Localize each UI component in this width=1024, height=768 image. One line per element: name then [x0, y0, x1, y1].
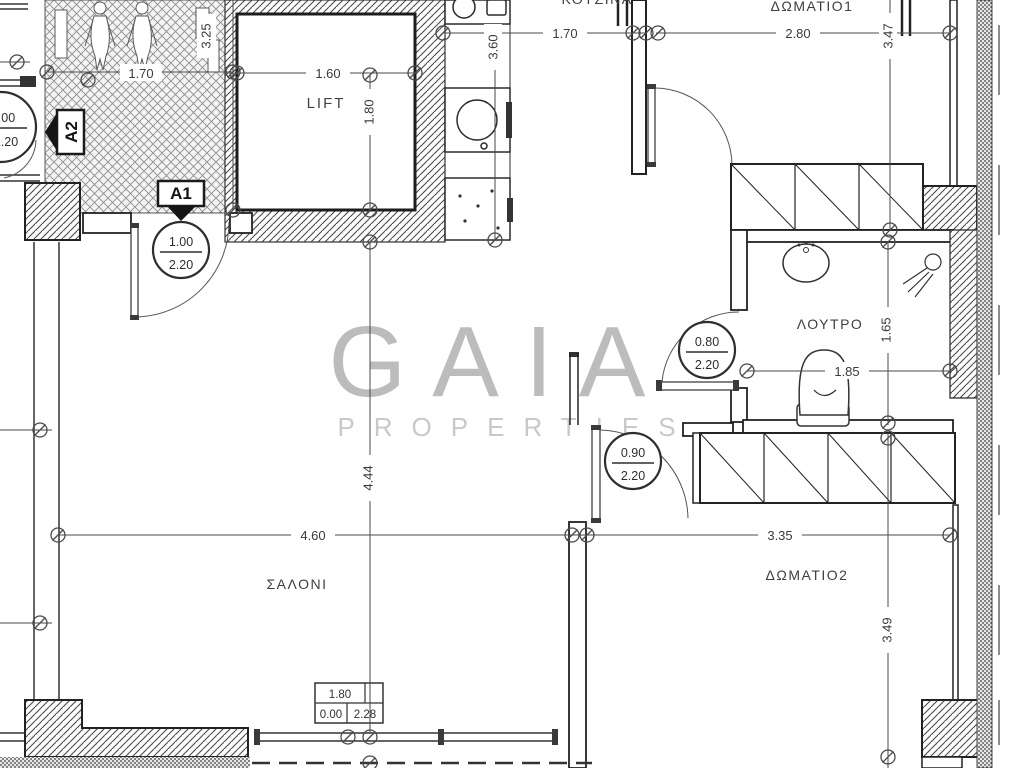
lift-cabin — [237, 14, 415, 210]
door-leaf — [131, 225, 138, 317]
dim-hall-width: 1.70 — [128, 66, 153, 81]
floor-plan-page: GAIA PROPERTIES LIFT — [0, 0, 1024, 768]
lift: LIFT — [225, 0, 445, 242]
floor-plan: GAIA PROPERTIES LIFT — [0, 0, 1024, 768]
door-height: 2.20 — [0, 135, 18, 149]
dim-bedroom1-depth: 3.47 — [881, 23, 896, 48]
dim-lift-width: 1.60 — [315, 66, 340, 81]
door-height: 2.20 — [695, 358, 719, 372]
marker-a1-label: A1 — [170, 184, 192, 203]
dim-lift-depth: 1.80 — [362, 99, 377, 124]
exterior-band-bottom — [0, 757, 250, 768]
door-leaf — [660, 382, 734, 390]
dim-kitchen-depth: 3.60 — [486, 34, 501, 59]
knob-icon — [481, 143, 487, 149]
worktop — [445, 178, 510, 240]
wall-block — [20, 76, 36, 87]
column — [25, 183, 80, 240]
door-jamb — [83, 213, 131, 233]
door-height: 2.20 — [169, 258, 193, 272]
sink-drainer-icon — [487, 0, 506, 15]
watermark: GAIA PROPERTIES — [329, 306, 695, 442]
column — [922, 700, 978, 757]
bedroom2-label: ΔΩΜΑΤΙΟ2 — [766, 567, 849, 583]
door-width: 1.00 — [0, 111, 15, 125]
dim-living-width: 4.60 — [300, 528, 325, 543]
bathroom-label: ΛΟΥΤΡΟ — [797, 316, 864, 332]
wardrobe-bedroom2 — [693, 433, 955, 503]
watermark-name: GAIA — [329, 306, 672, 418]
window-sill: 0.00 — [320, 709, 342, 721]
door-jamb — [230, 213, 252, 233]
door-label-entrance: 1.00 2.20 — [153, 222, 209, 278]
wardrobe-bedroom1 — [731, 164, 923, 230]
bedroom1-right-wall — [950, 0, 957, 186]
bathroom-outer-wall — [950, 230, 977, 398]
living-label: ΣΑΛΟΝΙ — [267, 576, 328, 592]
window-width: 1.80 — [329, 689, 351, 701]
basin-icon — [783, 244, 829, 282]
exterior-wall-band — [977, 0, 992, 768]
dim-hall-depth: 3.25 — [199, 23, 214, 48]
dim-kitchen-width: 1.70 — [552, 26, 577, 41]
door-label-bedroom2: 0.90 2.20 — [605, 433, 661, 489]
dim-bedroom1-width: 2.80 — [785, 26, 810, 41]
door-label-bathroom: 0.80 2.20 — [679, 322, 735, 378]
window-lintel: 2.28 — [354, 709, 376, 721]
lift-label: LIFT — [307, 95, 346, 112]
dim-bedroom2-width: 3.35 — [767, 528, 792, 543]
toilet-bowl-icon — [799, 350, 849, 415]
door-leaf — [648, 86, 655, 166]
bedroom1-label: ΔΩΜΑΤΙΟ1 — [771, 0, 854, 14]
dim-bedroom2-depth: 3.49 — [880, 617, 895, 642]
dim-bathroom-depth: 1.65 — [879, 317, 894, 342]
hob-icon — [457, 100, 497, 140]
kitchen-label: ΚΟΥΖΙΝΑ — [561, 0, 632, 7]
window-table: 1.80 0.00 2.28 — [315, 683, 383, 723]
door-height: 2.20 — [621, 469, 645, 483]
dim-bathroom-width: 1.85 — [834, 364, 859, 379]
marker-a2-label: A2 — [62, 121, 81, 143]
door-width: 0.90 — [621, 446, 645, 460]
sink-bowl-icon — [453, 0, 475, 18]
dim-living-depth: 4.44 — [361, 465, 376, 490]
door-width: 0.80 — [695, 335, 719, 349]
wall-stub — [922, 757, 962, 768]
door-width: 1.00 — [169, 235, 193, 249]
door-leaf — [592, 427, 600, 519]
